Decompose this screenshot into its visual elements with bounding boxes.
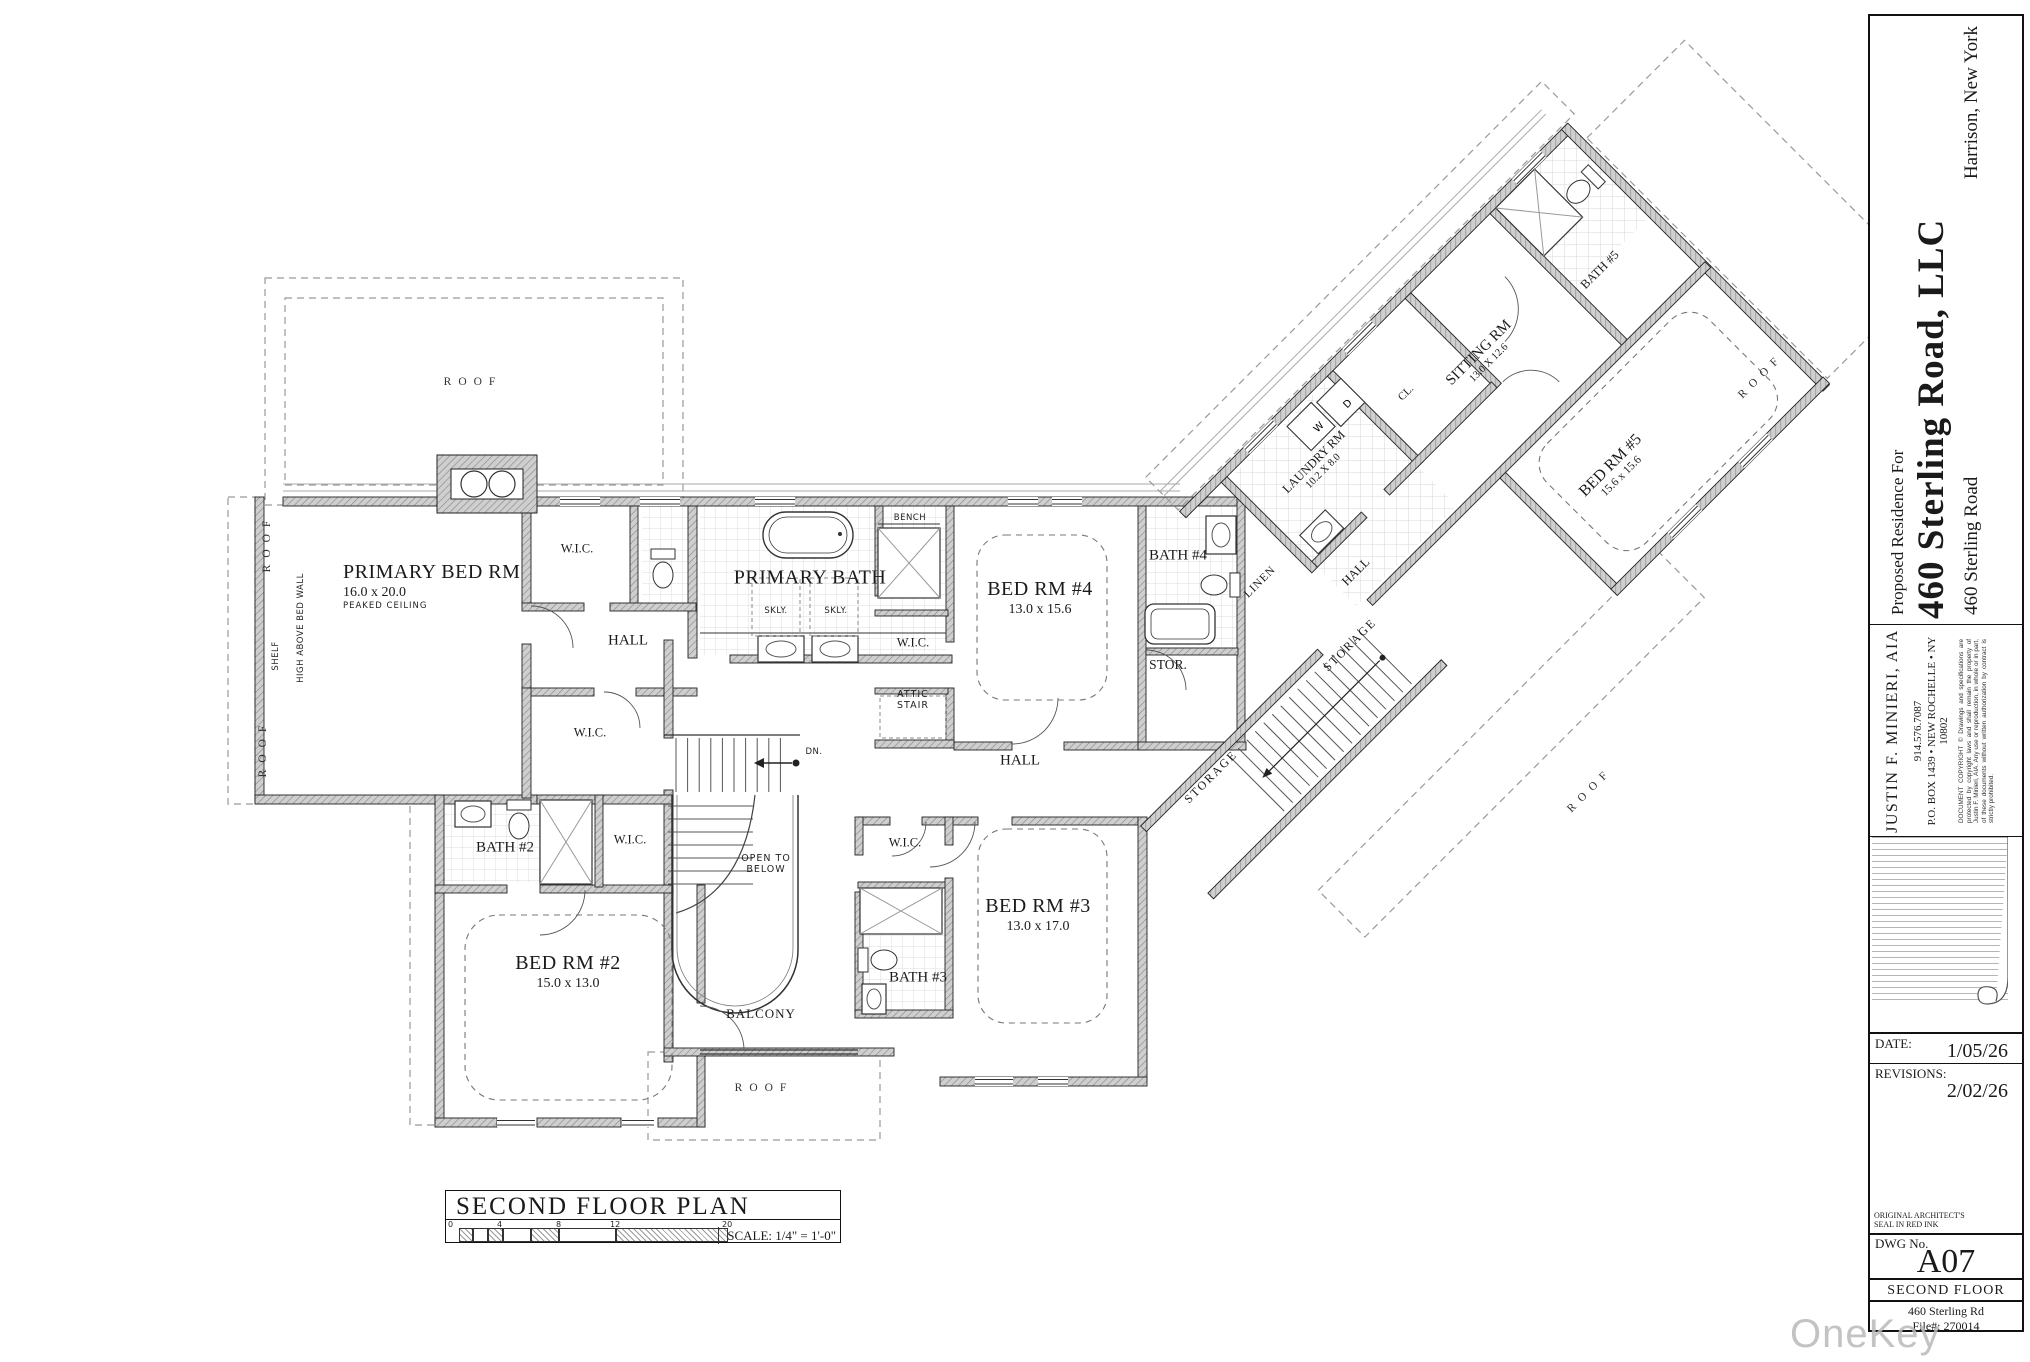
roof-label-west: ROOF: [261, 514, 273, 573]
bath2-label: BATH #2: [476, 840, 534, 857]
hall-label-upper: HALL: [608, 633, 648, 650]
roof-label-bottom: ROOF: [735, 1082, 794, 1094]
bath3-label: BATH #3: [889, 970, 947, 987]
seal-note-section: ORIGINAL ARCHITECT'S SEAL IN RED INK: [1870, 1207, 2022, 1235]
graphic-scale-bar: 0 4 8 12 20 SCALE: 1/4" = 1'-0": [446, 1219, 840, 1242]
scale-text: SCALE: 1/4" = 1'-0": [718, 1227, 836, 1244]
bed3-room-label: BED RM #3 13.0 x 17.0: [985, 895, 1091, 935]
roof-label-topleft: ROOF: [444, 376, 503, 388]
seal-note-line1: ORIGINAL ARCHITECT'S: [1874, 1211, 2022, 1220]
bed4-room-label: BED RM #4 13.0 x 15.6: [987, 578, 1093, 618]
scroll-decoration: [1870, 837, 2022, 1034]
scroll-curl-icon: [1870, 837, 2022, 1034]
title-block: Proposed Residence For 460 Sterling Road…: [1868, 14, 2024, 1332]
wic-label-4: W.I.C.: [889, 836, 922, 851]
wic-label-5: W.I.C.: [614, 833, 647, 848]
plan-title-box: SECOND FLOOR PLAN 0 4 8 12 20 SCALE: 1/4…: [445, 1190, 841, 1243]
skylight-label-1: SKLY.: [764, 606, 787, 616]
scale-tick: 0: [448, 1220, 453, 1229]
revisions-value: 2/02/26: [1947, 1080, 2008, 1103]
architect-name: JUSTIN F. MINIERI, AIA: [1884, 625, 1902, 837]
open-to-below-label: OPEN TO BELOW: [741, 853, 791, 875]
bench-label: BENCH: [894, 513, 926, 523]
room-dims: 16.0 x 20.0: [343, 585, 520, 601]
primary-bath-label: PRIMARY BATH: [734, 567, 887, 590]
architect-section: JUSTIN F. MINIERI, AIA 914.576.7087 P.O.…: [1870, 625, 2022, 837]
sheet-title-section: SECOND FLOOR: [1870, 1280, 2022, 1302]
architect-address: P.O. BOX 1439 • NEW ROCHELLE • NY 10802: [1926, 625, 1950, 837]
room-note: PEAKED CEILING: [343, 601, 520, 611]
sheet-title: SECOND FLOOR: [1870, 1283, 2022, 1299]
wic-label-2: W.I.C.: [574, 726, 607, 741]
dwg-section: DWG No. A07: [1870, 1235, 2022, 1280]
project-location: Harrison, New York: [1961, 26, 1983, 179]
project-address: 460 Sterling Road: [1961, 477, 1982, 615]
project-section: Proposed Residence For 460 Sterling Road…: [1870, 16, 2022, 625]
date-section: DATE: 1/05/26: [1870, 1034, 2022, 1064]
balcony-label: BALCONY: [726, 1006, 796, 1022]
bath4-label: BATH #4: [1149, 548, 1207, 565]
roof-label-west-lower: ROOF: [257, 719, 269, 778]
copyright-text: DOCUMENT COPYRIGHT © Drawings and specif…: [1958, 639, 1996, 823]
room-name: PRIMARY BED RM: [343, 561, 520, 584]
seal-note-line2: SEAL IN RED INK: [1874, 1220, 2022, 1229]
shelf-label: SHELF: [271, 641, 281, 670]
floor-plan-sheet: W D ROOF ROOF ROOF SHELF HIGH ABOVE BED …: [0, 0, 2030, 1362]
revisions-label: REVISIONS:: [1875, 1066, 1947, 1082]
proposed-for: Proposed Residence For: [1888, 16, 1908, 615]
plan-title: SECOND FLOOR PLAN: [456, 1193, 750, 1221]
revisions-section: REVISIONS: 2/02/26: [1870, 1064, 2022, 1207]
date-label: DATE:: [1875, 1036, 1912, 1052]
primary-bed-room-label: PRIMARY BED RM 16.0 x 20.0 PEAKED CEILIN…: [343, 561, 520, 611]
dwg-label: DWG No.: [1875, 1236, 1928, 1252]
bed2-room-label: BED RM #2 15.0 x 13.0: [515, 952, 621, 992]
wic-label-3: W.I.C.: [897, 636, 930, 651]
owner-name: 460 Sterling Road, LLC: [1910, 16, 1953, 619]
high-above-bed-wall-label: HIGH ABOVE BED WALL: [296, 573, 306, 683]
stor-label: STOR.: [1149, 657, 1187, 673]
date-value: 1/05/26: [1947, 1040, 2008, 1063]
wic-label-1: W.I.C.: [561, 542, 594, 557]
skylight-label-2: SKLY.: [824, 606, 847, 616]
watermark: OneKey MLS: [1790, 1312, 2030, 1362]
hall-label-lower: HALL: [1000, 753, 1040, 770]
down-label: DN.: [805, 747, 822, 757]
architect-phone: 914.576.7087: [1912, 625, 1924, 837]
attic-stair-label: ATTIC STAIR: [897, 689, 929, 711]
